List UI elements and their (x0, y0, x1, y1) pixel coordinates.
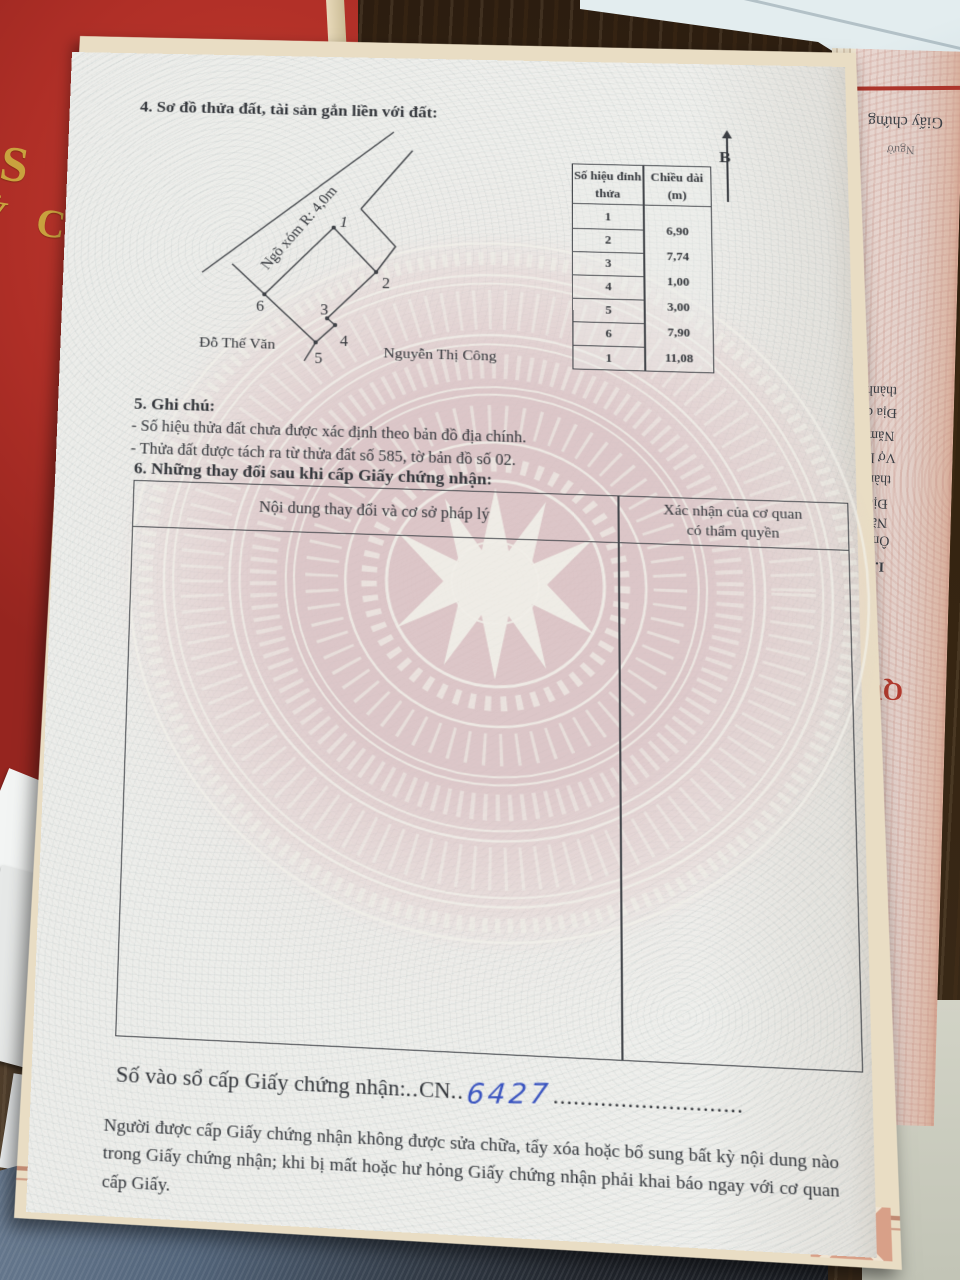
plot-diagram: 1 2 3 4 5 6 Ngõ xóm R: 4,0m Đỗ Thế Văn N… (189, 117, 514, 403)
column-header-confirmation: Xác nhận của cơ quan có thẩm quyền (618, 496, 848, 549)
vertex-label-5: 5 (314, 351, 322, 367)
certificate-red-border-line (851, 86, 960, 91)
table-row: 1 (573, 346, 644, 371)
table-row: 2 (573, 228, 643, 253)
plot-edge-4-5 (316, 325, 335, 343)
road-label: Ngõ xóm R: 4,0m (257, 183, 341, 272)
header-line: Số hiệu đỉnh (573, 167, 643, 186)
plot-edge-5-6 (230, 264, 317, 343)
adjacent-owner-bottom: Nguyễn Thị Công (383, 345, 496, 364)
table-row: 3 (573, 252, 643, 277)
dotted-leader: .. (450, 1078, 464, 1104)
registry-prefix: CN (419, 1076, 451, 1103)
length-value: 7,90 (645, 325, 713, 344)
registry-number-line: Số vào sổ cấp Giấy chứng nhận:..CN..6427… (115, 1059, 744, 1122)
handwritten-registry-number: 6427 (465, 1079, 552, 1111)
north-arrow: B (717, 130, 739, 204)
vertex-label-1: 1 (340, 215, 348, 231)
table-row: 1 (573, 205, 643, 230)
length-value: 1,00 (644, 274, 712, 293)
column-header-vertex: Số hiệu đỉnh thửa (573, 164, 643, 204)
vertex-label-3: 3 (320, 302, 328, 318)
road-edge-right (361, 150, 413, 211)
section5-heading: 5. Ghi chú: (134, 395, 216, 416)
changes-table: Nội dung thay đổi và cơ sở pháp lý Xác n… (115, 480, 863, 1073)
adjacent-owner-left: Đỗ Thế Văn (199, 334, 276, 352)
north-label: B (719, 148, 731, 167)
table-divider (617, 496, 623, 1060)
length-value: 11,08 (645, 351, 713, 370)
header-line: Chiều dài (643, 169, 710, 188)
registry-label: Số vào sổ cấp Giấy chứng nhận: (116, 1062, 406, 1102)
column-header-length: Chiều dài (m) (643, 166, 710, 206)
dotted-leader: .. (406, 1076, 420, 1102)
photo-scene: S N Ỷ C Giấy chứng Ngườ thành l Địa ch N… (0, 0, 960, 1280)
header-line: thửa (573, 184, 643, 203)
upside-down-text: Giấy chứng (868, 111, 943, 131)
footer-notice: Người được cấp Giấy chứng nhận không đượ… (101, 1112, 840, 1236)
dotted-leader: ............................ (553, 1083, 744, 1118)
header-line: (m) (644, 186, 711, 205)
upside-down-text: Ngườ (887, 142, 915, 158)
vertex-label-6: 6 (256, 299, 264, 315)
neighbor-boundary (360, 209, 396, 273)
vertex-length-table: Số hiệu đỉnh thửa Chiều dài (m) 1 2 3 4 … (572, 163, 715, 373)
table-row: 4 (573, 275, 643, 300)
length-value: 6,90 (644, 224, 711, 242)
length-value: 3,00 (645, 300, 713, 319)
certificate-page: 4. Sơ đồ thửa đất, tài sản gắn liền với … (26, 52, 877, 1258)
length-value: 7,74 (644, 249, 712, 267)
table-row: 6 (573, 322, 644, 348)
plot-edge-1-2 (333, 228, 377, 273)
vertex-rows: 1 2 3 4 5 6 1 (573, 205, 644, 370)
table-row: 5 (573, 299, 644, 324)
plot-edge-2-3 (327, 271, 376, 320)
road-edge-left (202, 128, 394, 277)
north-arrow-shaft (726, 136, 729, 202)
vertex-label-2: 2 (382, 276, 390, 292)
vertex-label-4: 4 (340, 334, 349, 350)
